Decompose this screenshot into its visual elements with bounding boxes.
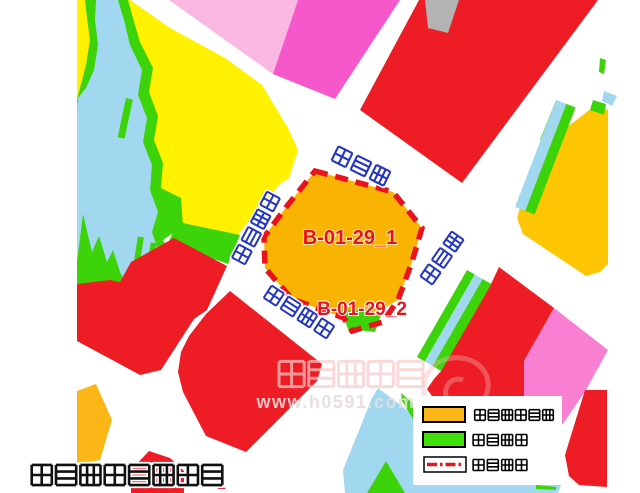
svg-text:B-01-29_2: B-01-29_2 <box>317 299 407 320</box>
svg-text:www.h0591.com: www.h0591.com <box>256 392 416 412</box>
svg-text:B-01-29_1: B-01-29_1 <box>303 227 398 249</box>
